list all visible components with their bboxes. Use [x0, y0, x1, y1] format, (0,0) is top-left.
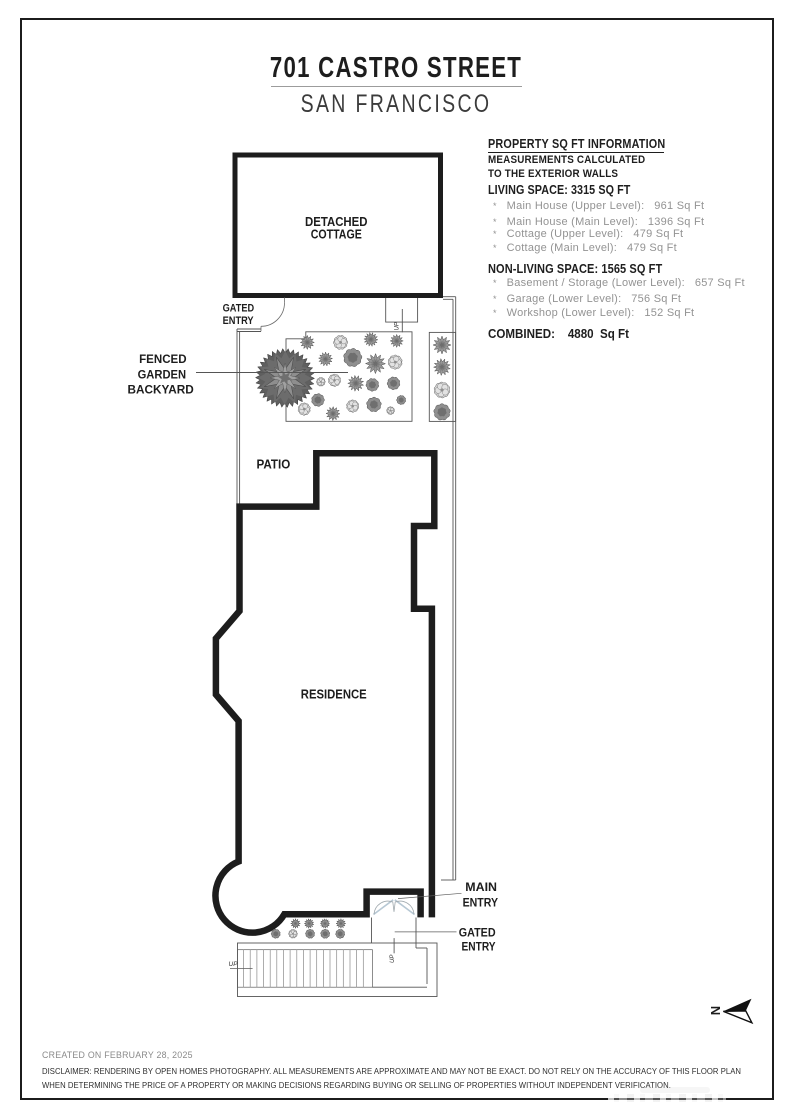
svg-text:BACKYARD: BACKYARD	[128, 383, 195, 397]
svg-text:COTTAGE: COTTAGE	[311, 227, 362, 242]
svg-text:RESIDENCE: RESIDENCE	[301, 687, 367, 702]
svg-text:ENTRY: ENTRY	[463, 898, 499, 910]
svg-text:ENTRY: ENTRY	[223, 315, 255, 327]
svg-text:PATIO: PATIO	[257, 457, 291, 472]
svg-text:UP: UP	[395, 322, 401, 330]
svg-text:MAIN: MAIN	[465, 882, 497, 894]
svg-text:UP: UP	[229, 961, 239, 968]
svg-text:N: N	[708, 1006, 723, 1015]
svg-text:GATED: GATED	[459, 928, 496, 940]
svg-text:GATED: GATED	[223, 302, 255, 314]
svg-text:FENCED: FENCED	[139, 352, 187, 366]
svg-text:ENTRY: ENTRY	[462, 941, 496, 953]
svg-text:GARDEN: GARDEN	[138, 367, 187, 381]
svg-text:UP: UP	[390, 955, 396, 963]
